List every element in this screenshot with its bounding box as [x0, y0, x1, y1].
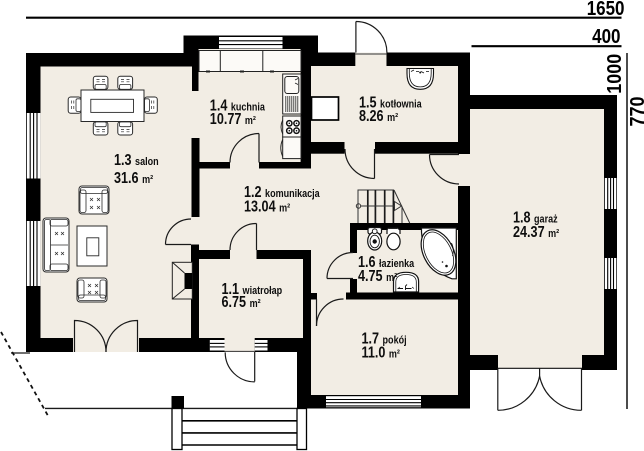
- svg-text:1650: 1650: [587, 0, 625, 20]
- svg-text:770: 770: [627, 96, 644, 126]
- svg-text:1000: 1000: [604, 54, 626, 94]
- svg-text:400: 400: [592, 25, 620, 48]
